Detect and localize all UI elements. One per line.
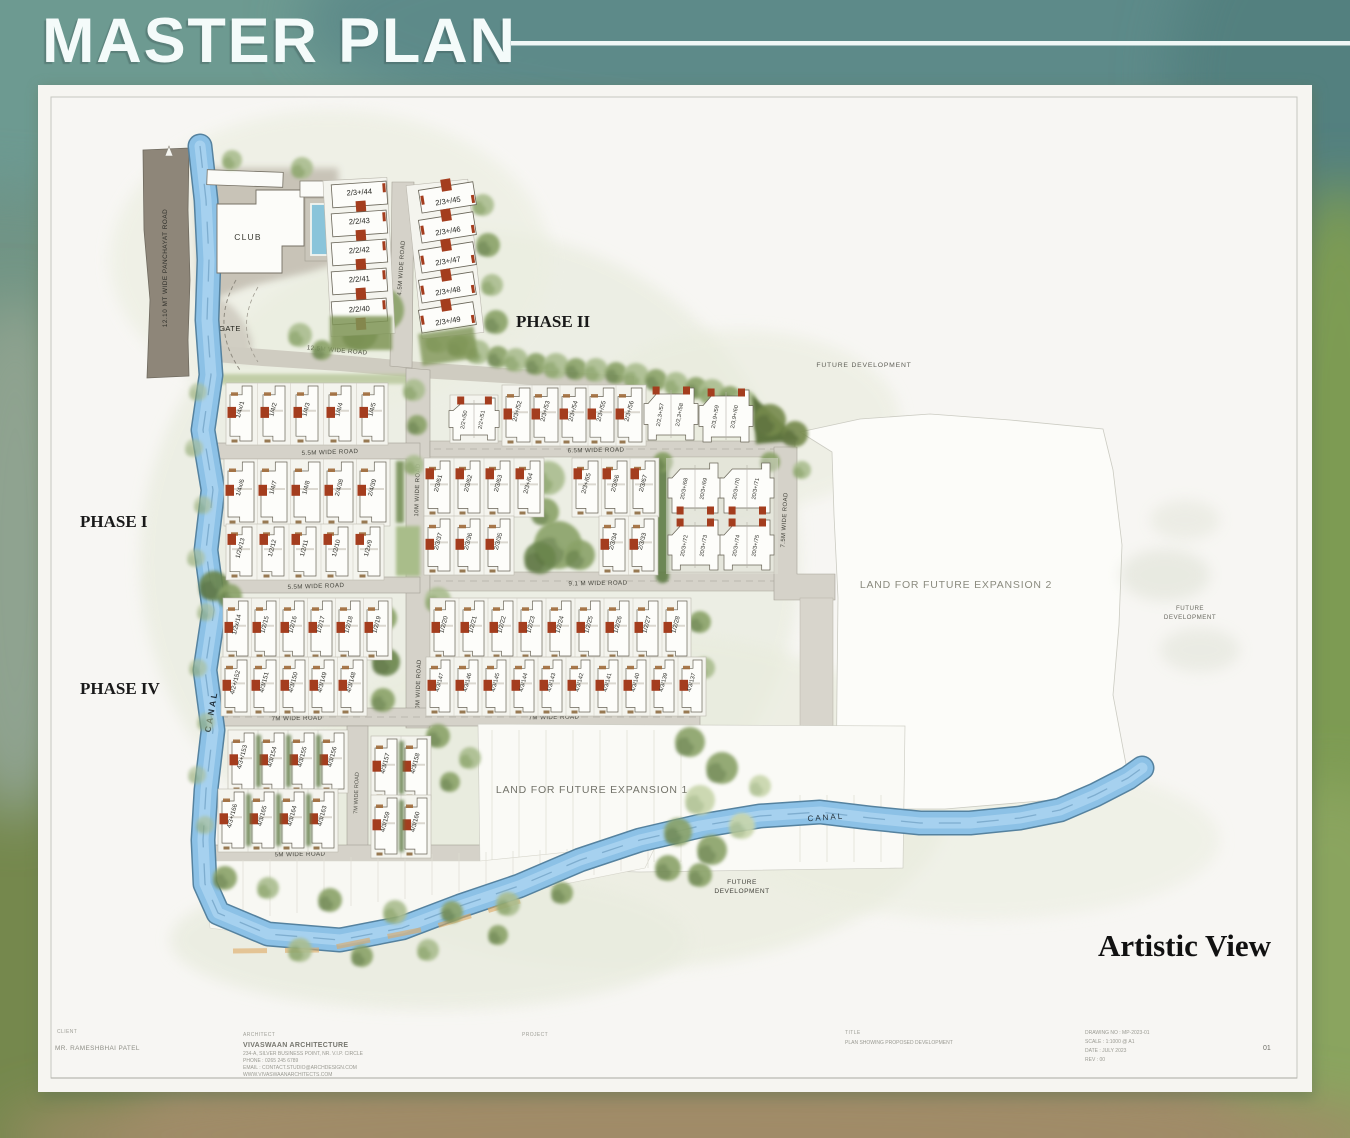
svg-text:DEVELOPMENT: DEVELOPMENT xyxy=(1164,614,1216,621)
svg-text:EMAIL : CONTACT.STUDIO@ARCHDES: EMAIL : CONTACT.STUDIO@ARCHDESIGN.COM xyxy=(243,1065,357,1071)
svg-text:2/2/41: 2/2/41 xyxy=(348,274,370,284)
svg-text:PLAN SHOWING PROPOSED DEVELOPM: PLAN SHOWING PROPOSED DEVELOPMENT xyxy=(845,1040,953,1046)
svg-text:2/2/43: 2/2/43 xyxy=(348,216,370,226)
svg-text:FUTURE: FUTURE xyxy=(1176,605,1204,612)
svg-text:GATE: GATE xyxy=(219,324,241,333)
svg-text:2/3+/44: 2/3+/44 xyxy=(346,187,372,198)
svg-text:LAND FOR FUTURE EXPANSION 2: LAND FOR FUTURE EXPANSION 2 xyxy=(860,579,1052,591)
svg-text:12.10 MT WIDE PANCHAYAT ROAD: 12.10 MT WIDE PANCHAYAT ROAD xyxy=(162,209,169,327)
svg-text:DATE : JULY 2023: DATE : JULY 2023 xyxy=(1085,1048,1127,1054)
svg-text:2/2/42: 2/2/42 xyxy=(348,245,370,255)
svg-text:PHASE I: PHASE I xyxy=(80,512,148,531)
svg-text:CLIENT: CLIENT xyxy=(57,1029,77,1035)
svg-text:TITLE: TITLE xyxy=(845,1030,861,1036)
svg-text:DEVELOPMENT: DEVELOPMENT xyxy=(714,888,769,895)
svg-text:WWW.VIVASWAANARCHITECTS.COM: WWW.VIVASWAANARCHITECTS.COM xyxy=(243,1072,332,1078)
svg-text:PHASE IV: PHASE IV xyxy=(80,679,161,698)
svg-text:ARCHITECT: ARCHITECT xyxy=(243,1032,275,1038)
svg-text:PHONE : 0265 245 6789: PHONE : 0265 245 6789 xyxy=(243,1058,299,1064)
svg-text:Artistic View: Artistic View xyxy=(1098,928,1272,963)
svg-text:DRAWING NO : MP-2023-01: DRAWING NO : MP-2023-01 xyxy=(1085,1030,1150,1036)
svg-text:FUTURE: FUTURE xyxy=(727,879,757,886)
svg-text:CLUB: CLUB xyxy=(234,232,261,242)
svg-text:MR. RAMESHBHAI PATEL: MR. RAMESHBHAI PATEL xyxy=(55,1045,140,1052)
svg-text:FUTURE DEVELOPMENT: FUTURE DEVELOPMENT xyxy=(816,362,911,369)
svg-text:6.5M WIDE ROAD: 6.5M WIDE ROAD xyxy=(568,447,625,455)
svg-text:01: 01 xyxy=(1263,1045,1271,1052)
svg-text:LAND FOR FUTURE EXPANSION 1: LAND FOR FUTURE EXPANSION 1 xyxy=(496,784,688,796)
svg-text:PHASE II: PHASE II xyxy=(516,312,591,331)
svg-text:234-A, SILVER BUSINESS POINT,: 234-A, SILVER BUSINESS POINT, NR. V.I.P.… xyxy=(243,1051,364,1057)
svg-text:SCALE : 1:1000 @ A1: SCALE : 1:1000 @ A1 xyxy=(1085,1039,1135,1045)
svg-text:VIVASWAAN ARCHITECTURE: VIVASWAAN ARCHITECTURE xyxy=(243,1042,348,1049)
svg-text:PROJECT: PROJECT xyxy=(522,1032,548,1038)
svg-text:2/2/40: 2/2/40 xyxy=(348,304,370,314)
svg-text:MASTER PLAN: MASTER PLAN xyxy=(42,6,517,76)
svg-text:REV : 00: REV : 00 xyxy=(1085,1057,1105,1063)
svg-text:9.1 M WIDE ROAD: 9.1 M WIDE ROAD xyxy=(568,579,627,587)
